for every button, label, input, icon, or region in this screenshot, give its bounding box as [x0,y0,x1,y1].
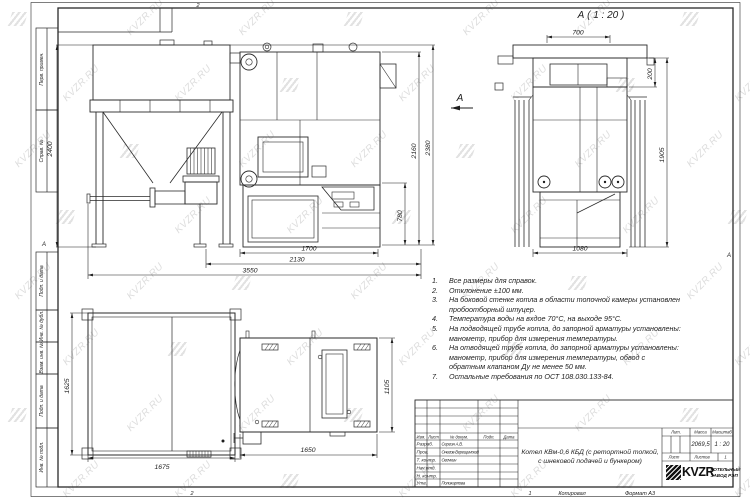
company-logo-text: KVZR [682,465,714,479]
tb-role: Разраб. [417,442,434,447]
tb-name: Поликарпова [442,481,465,486]
tb-role: Н. контр. [417,473,438,478]
tb-role: Т. контр. [417,458,437,463]
tb-lit-label: Лит. [671,430,681,435]
tb-scale-value: 1 : 20 [714,442,729,448]
company-name-line1: КОТЕЛЬНЫЙ [711,467,741,473]
company-logo-icon [666,465,681,480]
tb-name: Сергин А.В. [442,442,463,447]
tb-header-docno: № докум. [450,434,468,439]
tb-header-podp: Подп. [483,434,494,439]
tb-sheets-value: 1 [724,455,726,460]
tb-sheet-label: Лист [669,455,680,460]
title-block: Изм. Лист № докум. Подп. Дата Разраб. Пр… [0,0,750,500]
company-name-line2: ЗАВОД РЭП [711,473,741,479]
document-title: Котел КВм-0,6 КБД (с ретортной топкой, с… [520,430,660,485]
tb-role: Пров. [417,450,429,455]
tb-role: Утв. [417,481,427,486]
tb-mass-label: Масса [694,430,706,435]
tb-role: Нач.отд. [417,466,436,471]
tb-header-list: Лист [428,434,439,439]
tb-mass-value: 2069,5 [691,442,709,448]
tb-header-data: Дата [503,434,514,439]
company-name: КОТЕЛЬНЫЙ ЗАВОД РЭП [711,467,741,479]
tb-name: Онегов-Верещинский [442,450,479,455]
tb-sheets-label: Листов [694,455,709,460]
drawing-sheet: KVZR.RUKVZR.RUKVZR.RUKVZR.RUKVZR.RUKVZR.… [0,0,750,500]
tb-name: Огечкин [442,458,457,463]
tb-header-izm: Изм. [417,434,426,439]
tb-scale-label: Масштаб [712,430,732,435]
